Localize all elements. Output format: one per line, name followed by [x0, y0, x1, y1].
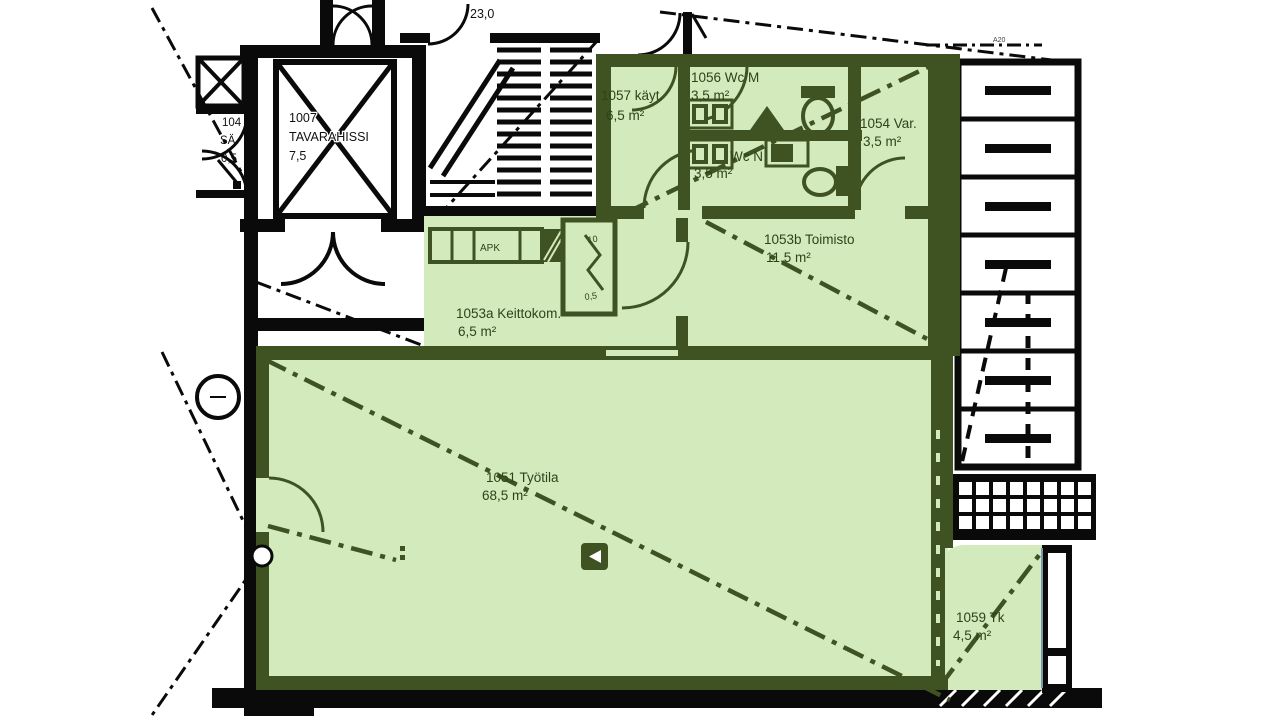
- floor-plan-canvas: 104 SÄ 0,5: [0, 0, 1280, 720]
- tyotila-label: 1051 Työtila: [486, 470, 559, 485]
- keittokomero-label: 1053a Keittokom.: [456, 306, 561, 321]
- keittokomero-area: 6,5 m²: [458, 324, 497, 339]
- kaytava-area: 6,5 m²: [606, 108, 645, 123]
- grate: [950, 474, 1096, 540]
- marker-dot: [400, 546, 405, 551]
- wcn-area: 3,5 m²: [694, 166, 733, 181]
- marker-dot: [400, 555, 405, 560]
- door-hinge-ring: [252, 546, 272, 566]
- tavarahissi-area: 7,5: [289, 149, 306, 163]
- top-dimension: 23,0: [470, 7, 494, 21]
- toimisto-label: 1053b Toimisto: [764, 232, 855, 247]
- exit-sign-icon: [581, 543, 608, 570]
- wcm-area: 3,5 m²: [691, 88, 730, 103]
- shaft-top-label: 10: [587, 234, 598, 245]
- tk-area: 4,5 m²: [953, 628, 992, 643]
- a20-label: A20: [993, 37, 1006, 44]
- shaft-area-label: 0,5: [584, 290, 598, 302]
- wcm-label: 1056 Wc M: [691, 70, 759, 85]
- sahkokomero-id: 104: [222, 117, 242, 129]
- varasto-area: 3,5 m²: [863, 134, 902, 149]
- kaytava-label: 1057 käyt.: [601, 88, 663, 103]
- wcn-label: Wc N: [730, 149, 763, 164]
- varasto-label: 1054 Var.: [860, 116, 917, 131]
- apk-label: APK: [480, 243, 500, 254]
- tyotila-area: 68,5 m²: [482, 488, 528, 503]
- hatched-wall: [930, 688, 1102, 708]
- toimisto-area: 11,5 m²: [766, 250, 811, 265]
- tavarahissi-name: TAVARAHISSI: [289, 130, 369, 144]
- duct-shaft-icon: [198, 58, 244, 106]
- tk-label: 1059 Tk: [956, 610, 1005, 625]
- tavarahissi-id: 1007: [289, 111, 317, 125]
